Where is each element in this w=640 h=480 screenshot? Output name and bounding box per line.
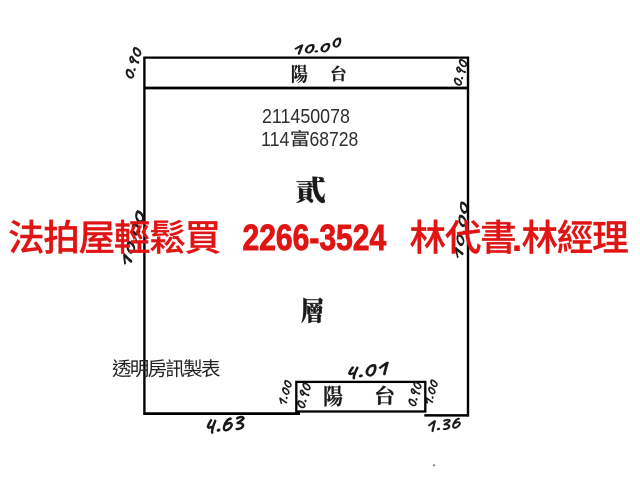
svg-text:211450078: 211450078 <box>262 106 350 128</box>
svg-text:114: 114 <box>261 129 290 151</box>
svg-text:68728: 68728 <box>310 129 359 152</box>
svg-text:2266-3524: 2266-3524 <box>243 218 387 258</box>
